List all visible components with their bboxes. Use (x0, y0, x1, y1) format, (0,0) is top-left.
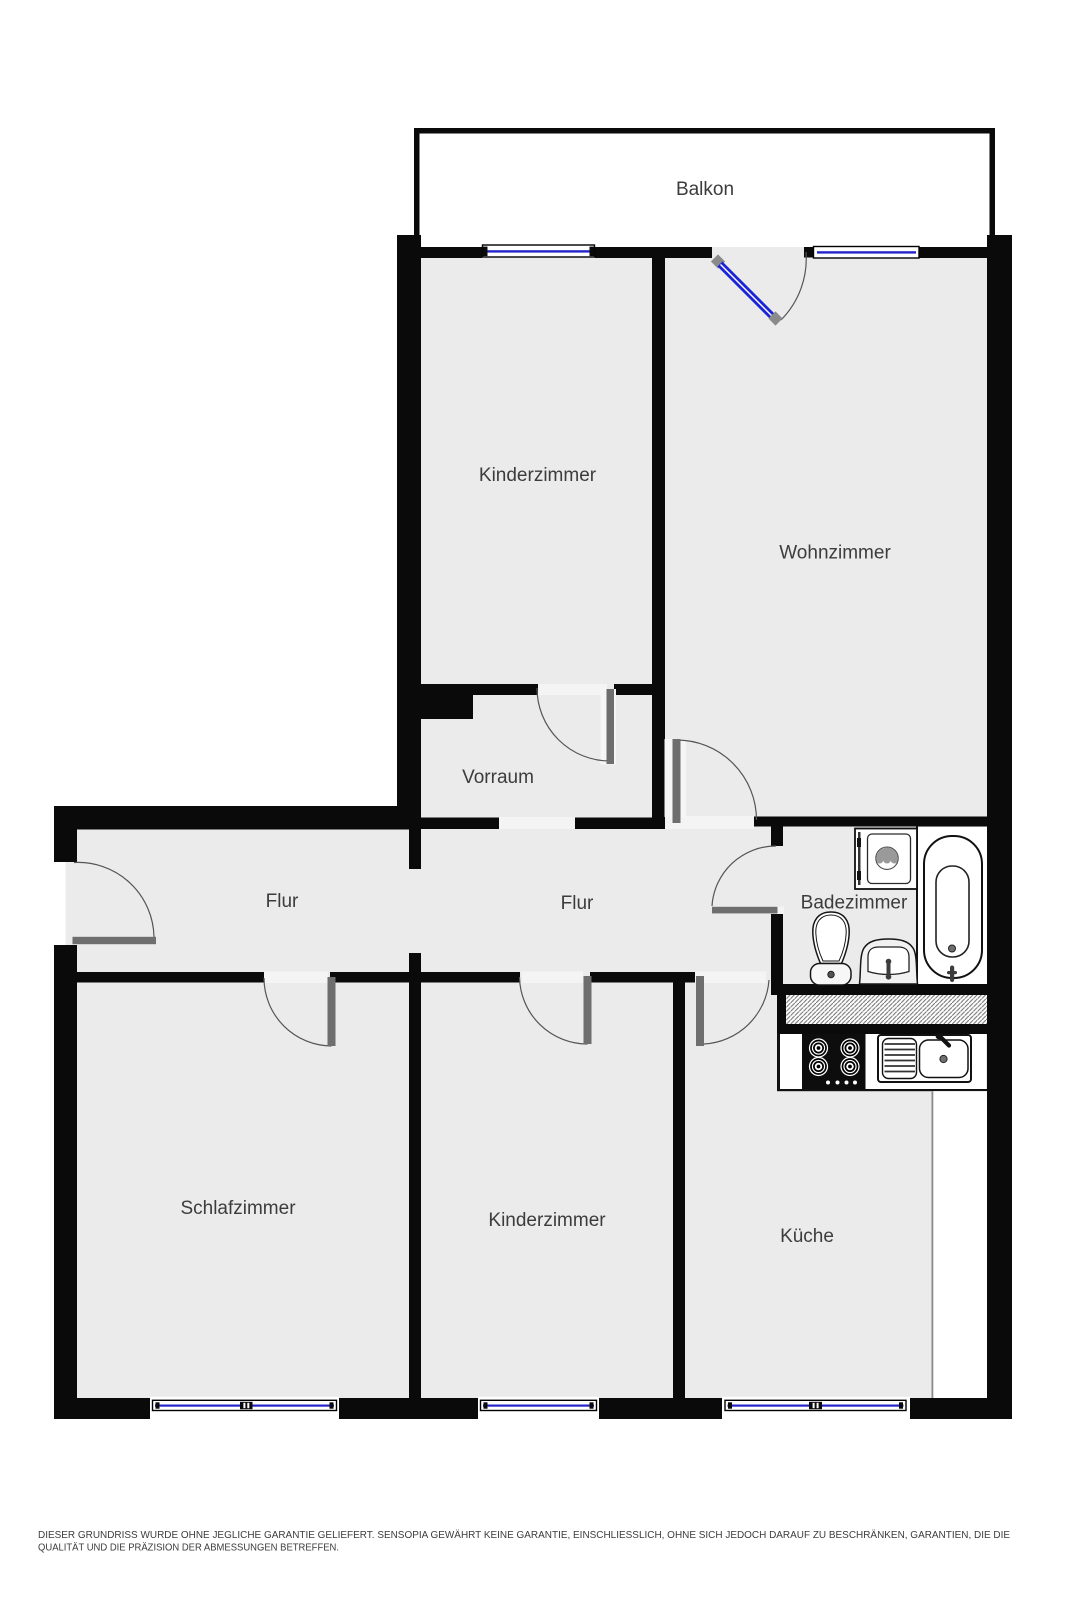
svg-text:Küche: Küche (780, 1226, 834, 1247)
svg-text:QUALITÄT UND DIE PRÄZISION DER: QUALITÄT UND DIE PRÄZISION DER ABMESSUNG… (38, 1542, 339, 1554)
svg-text:Badezimmer: Badezimmer (801, 893, 908, 914)
svg-text:Flur: Flur (561, 893, 594, 914)
svg-text:Flur: Flur (266, 891, 299, 912)
svg-text:Balkon: Balkon (676, 179, 734, 200)
svg-text:Schlafzimmer: Schlafzimmer (180, 1198, 296, 1219)
svg-text:Kinderzimmer: Kinderzimmer (488, 1210, 606, 1231)
svg-text:Vorraum: Vorraum (462, 767, 534, 788)
svg-text:DIESER GRUNDRISS WURDE OHNE JE: DIESER GRUNDRISS WURDE OHNE JEGLICHE GAR… (38, 1529, 1010, 1541)
svg-text:Kinderzimmer: Kinderzimmer (479, 465, 597, 486)
svg-text:Wohnzimmer: Wohnzimmer (779, 543, 891, 564)
